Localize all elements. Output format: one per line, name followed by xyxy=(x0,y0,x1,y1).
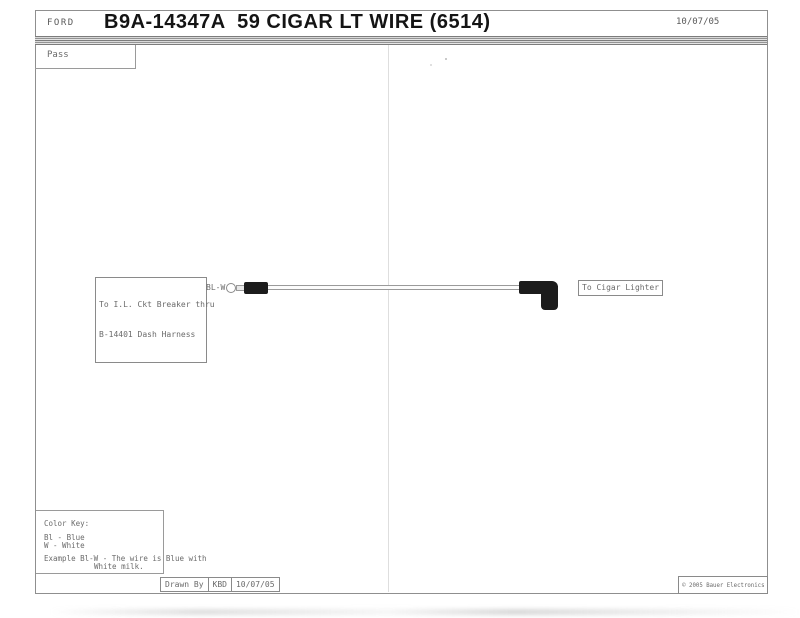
ring-terminal-icon xyxy=(226,283,236,293)
color-key-example-line2: White milk. xyxy=(94,562,144,572)
elbow-connector-leg xyxy=(541,286,558,310)
scan-smudge xyxy=(50,609,800,615)
scan-speck xyxy=(430,64,432,66)
drawn-by-date-cell: 10/07/05 xyxy=(231,577,280,592)
connector-block-icon xyxy=(244,282,268,294)
color-key-entry: W - White xyxy=(44,541,85,551)
scanned-wiring-diagram-page: FORD B9A-14347A 59 CIGAR LT WIRE (6514) … xyxy=(0,0,800,618)
pass-box: Pass xyxy=(35,45,136,69)
page-title: B9A-14347A 59 CIGAR LT WIRE (6514) xyxy=(104,11,491,34)
wire-color-code: BL-W xyxy=(206,283,225,293)
pass-label: Pass xyxy=(47,50,69,60)
left-endpoint-label: To I.L. Ckt Breaker thru B-14401 Dash Ha… xyxy=(95,277,207,363)
header-stripe-bar xyxy=(35,36,767,45)
copyright-box: © 2005 Bauer Electronics xyxy=(678,576,768,594)
scan-speck xyxy=(445,58,447,60)
brand-label: FORD xyxy=(47,18,75,28)
color-key-title: Color Key: xyxy=(44,519,89,529)
left-endpoint-label-line2: B-14401 Dash Harness xyxy=(99,330,203,340)
copyright-text: © 2005 Bauer Electronics xyxy=(682,582,764,589)
page-fold-line xyxy=(388,45,389,592)
drawn-by-label-cell: Drawn By xyxy=(160,577,208,592)
left-endpoint-label-line1: To I.L. Ckt Breaker thru xyxy=(99,300,203,310)
wire-line xyxy=(268,285,520,290)
drawn-by-table: Drawn By KBD 10/07/05 xyxy=(160,577,280,592)
color-key-box: Color Key: Bl - Blue W - White Example B… xyxy=(36,510,164,574)
right-endpoint-label: To Cigar Lighter xyxy=(578,280,663,296)
header-date: 10/07/05 xyxy=(676,17,719,27)
drawn-by-value-cell: KBD xyxy=(208,577,231,592)
